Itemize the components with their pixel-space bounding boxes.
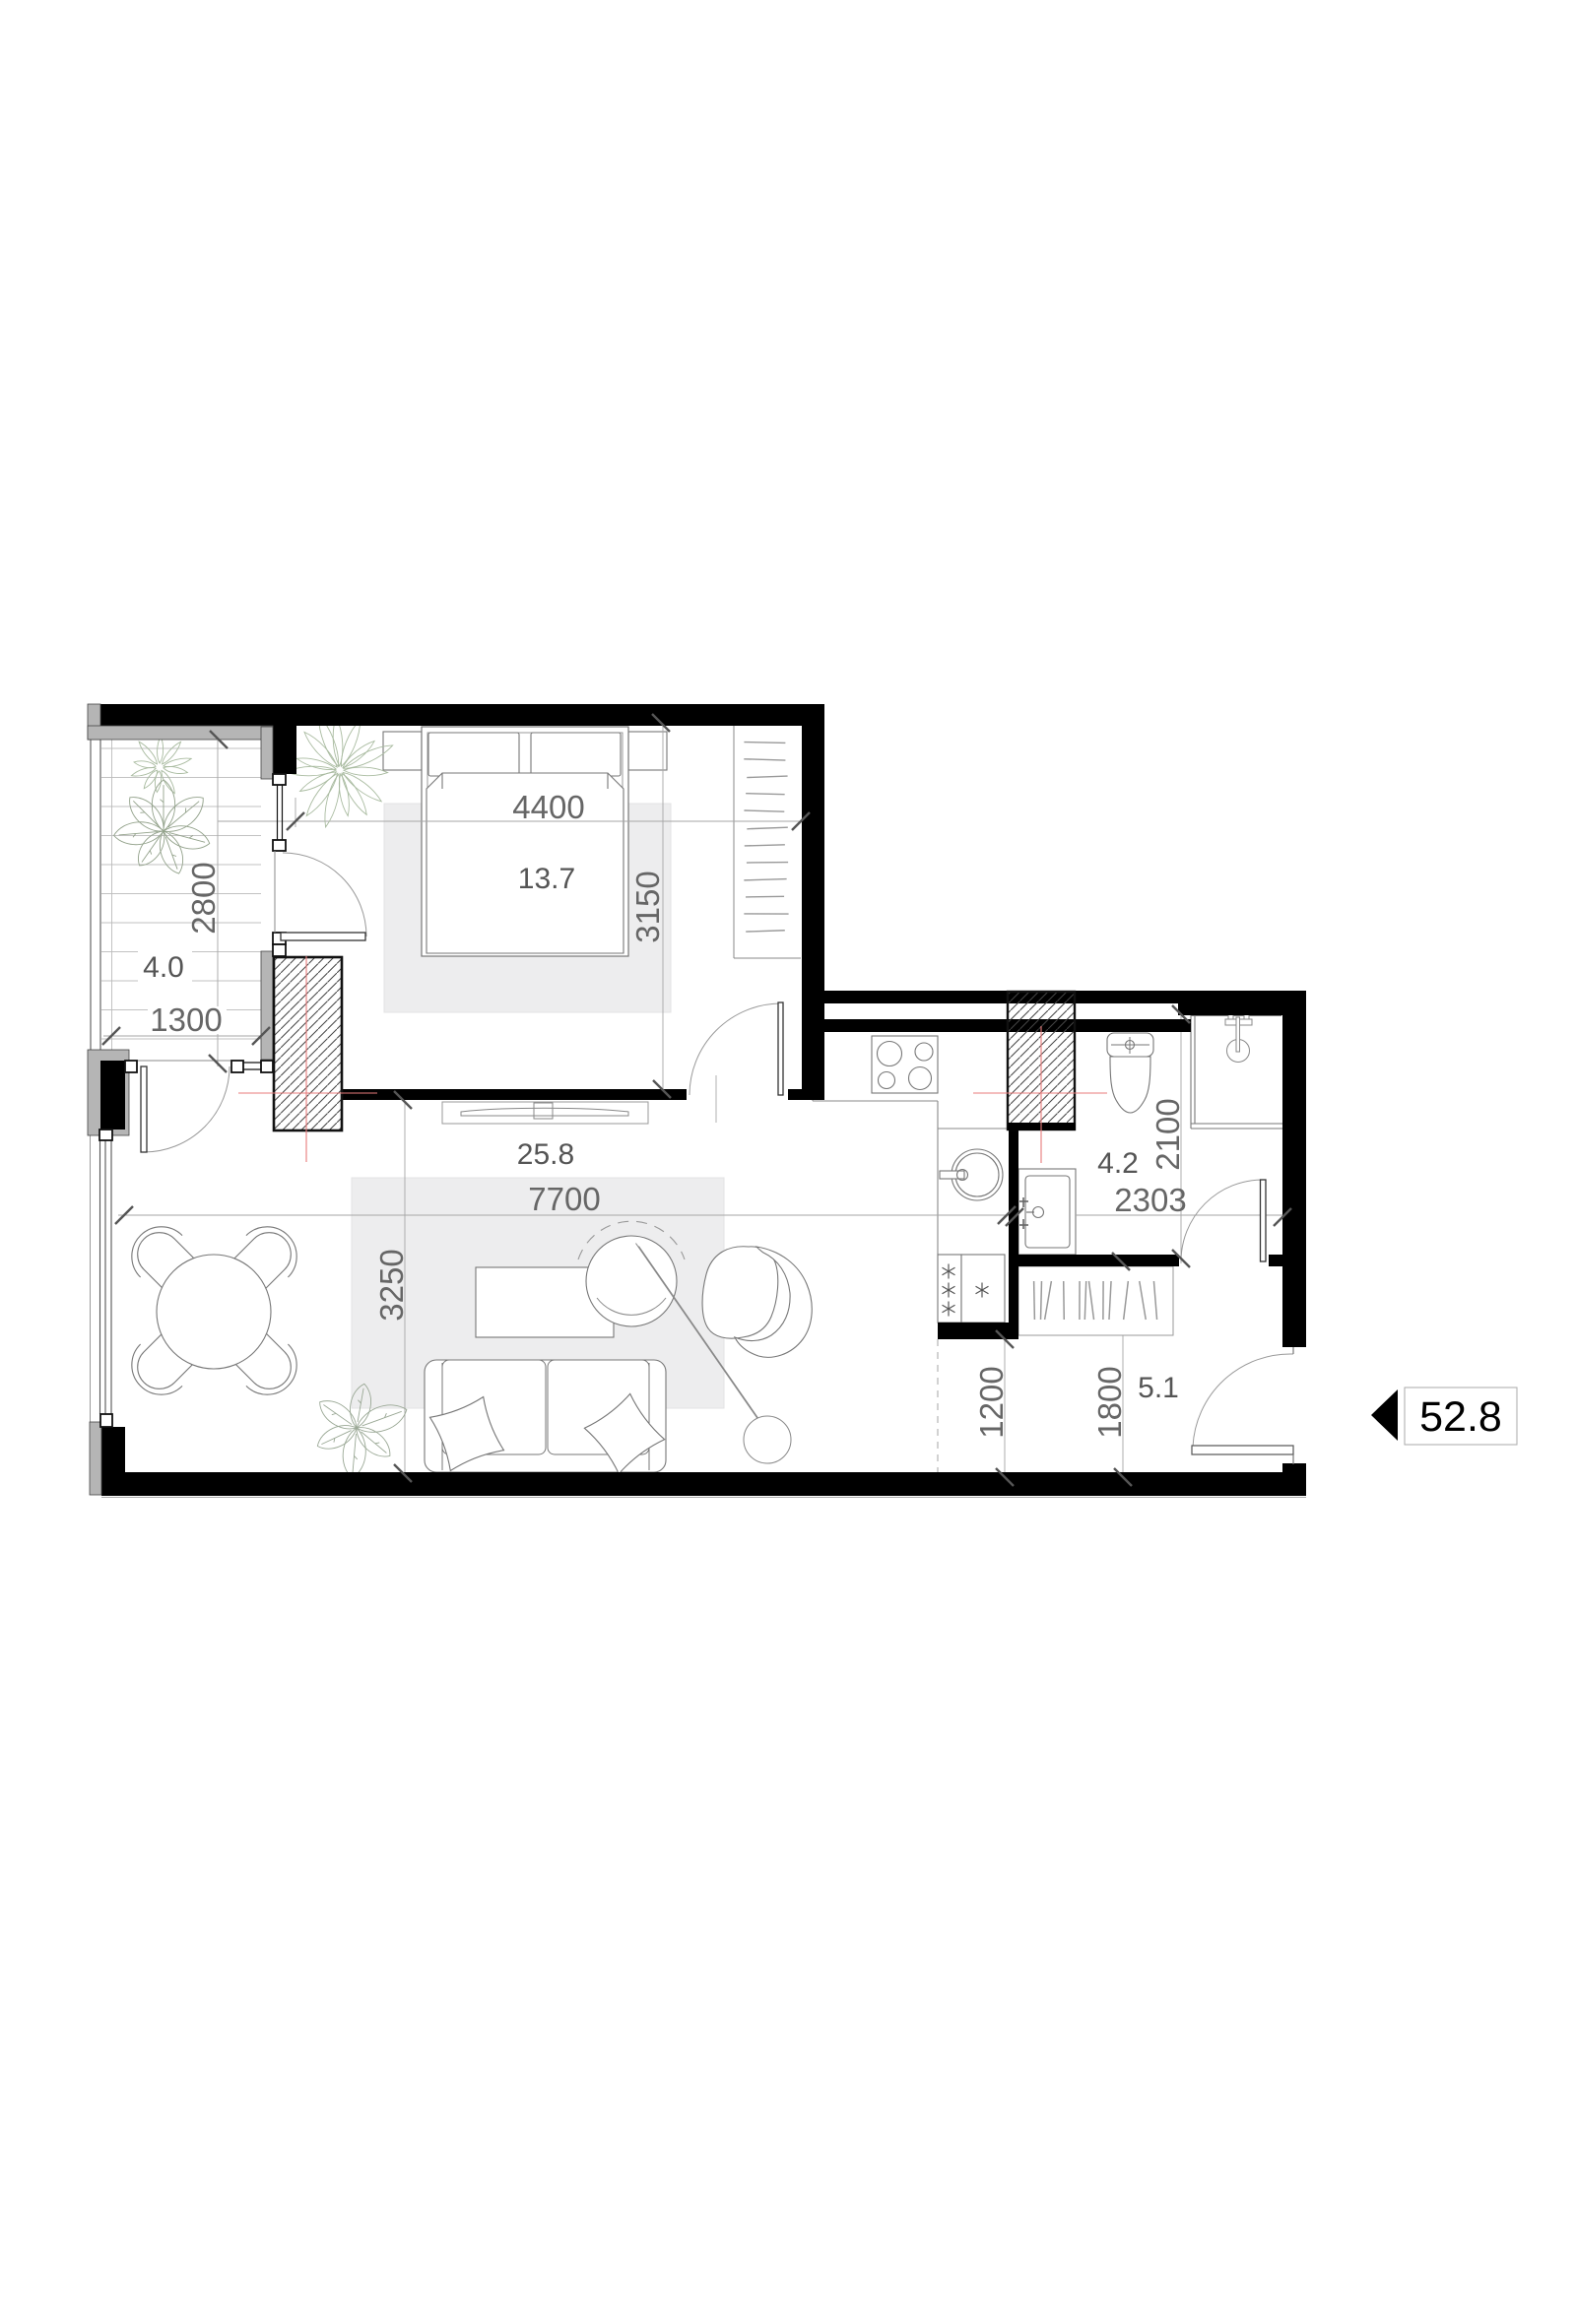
svg-text:1200: 1200 (973, 1366, 1010, 1438)
svg-text:2800: 2800 (185, 862, 222, 934)
svg-text:4400: 4400 (512, 789, 584, 825)
svg-text:13.7: 13.7 (518, 863, 575, 895)
svg-text:4.0: 4.0 (143, 951, 184, 984)
svg-text:3150: 3150 (629, 871, 666, 942)
svg-text:5.1: 5.1 (1138, 1372, 1179, 1404)
svg-text:2100: 2100 (1149, 1098, 1186, 1170)
svg-text:25.8: 25.8 (517, 1138, 574, 1171)
svg-text:2303: 2303 (1114, 1182, 1186, 1218)
svg-text:3250: 3250 (373, 1249, 410, 1321)
svg-text:4.2: 4.2 (1097, 1147, 1139, 1180)
svg-text:1800: 1800 (1091, 1366, 1128, 1438)
svg-text:1300: 1300 (150, 1001, 222, 1038)
svg-text:52.8: 52.8 (1419, 1393, 1502, 1441)
svg-text:7700: 7700 (528, 1181, 600, 1217)
